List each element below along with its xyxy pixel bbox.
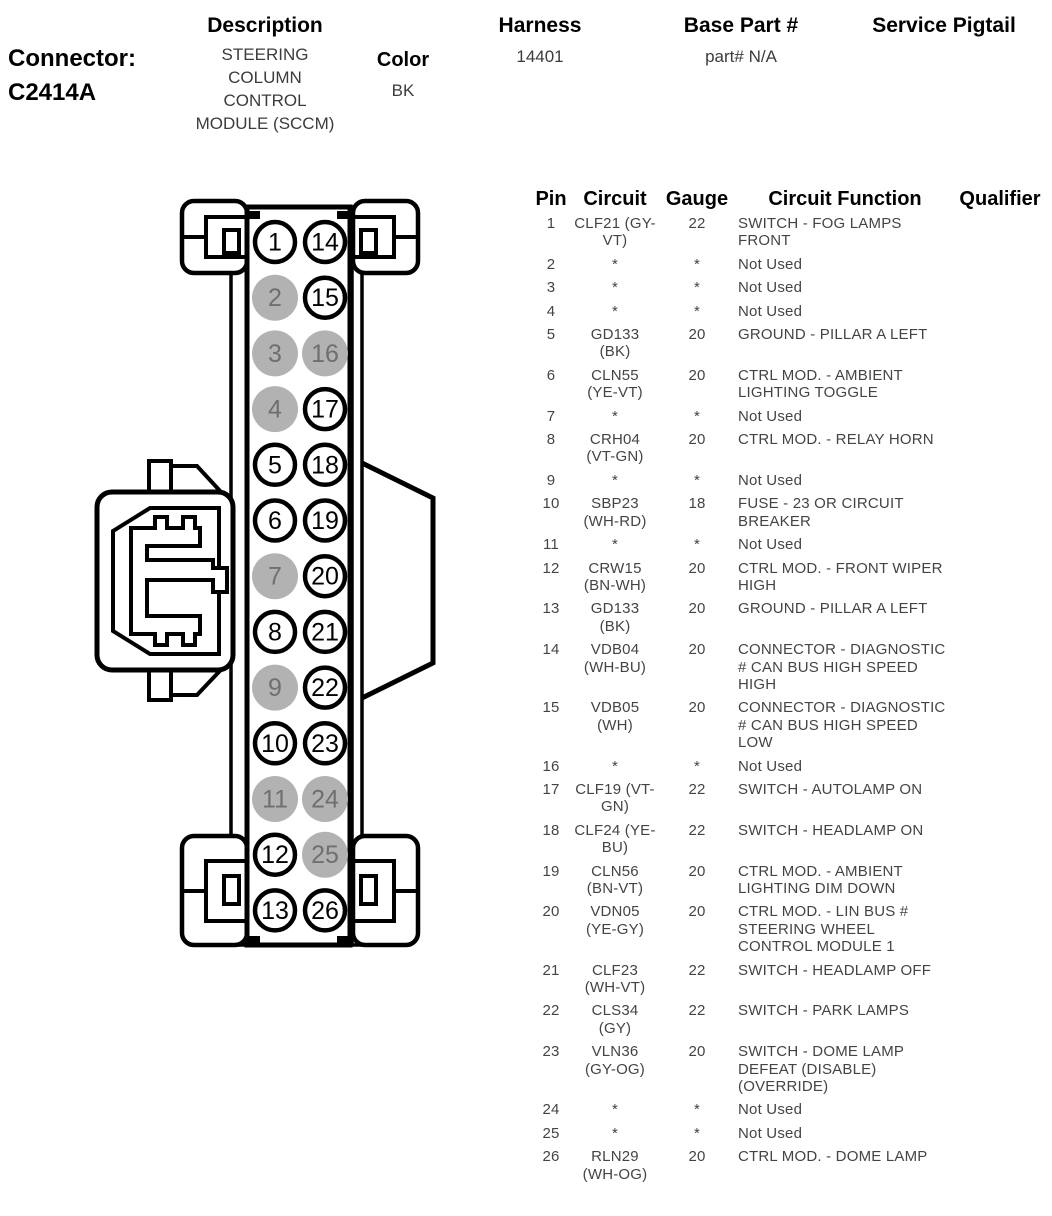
connector-ear-top-left	[182, 201, 247, 273]
svg-text:25: 25	[311, 841, 339, 869]
table-row: 14VDB04 (WH-BU)20CONNECTOR - DIAGNOSTIC …	[528, 638, 1048, 696]
pin-cell: 13	[528, 600, 574, 617]
connector-pin-12: 12	[255, 835, 295, 875]
gauge-cell: 20	[656, 699, 738, 716]
svg-text:6: 6	[268, 507, 282, 535]
connector-pin-8: 8	[255, 612, 295, 652]
gauge-cell: 20	[656, 560, 738, 577]
connector-pin-24: 24	[302, 776, 348, 822]
qualifier-cell	[952, 600, 1048, 601]
connector-pin-15: 15	[305, 278, 345, 318]
table-row: 25**Not Used	[528, 1122, 1048, 1145]
pin-cell: 3	[528, 279, 574, 296]
function-cell: CTRL MOD. - RELAY HORN	[738, 431, 952, 448]
column-header-gauge: Gauge	[656, 188, 738, 210]
gauge-cell: *	[656, 1125, 738, 1142]
table-row: 12CRW15 (BN-WH)20CTRL MOD. - FRONT WIPER…	[528, 557, 1048, 598]
pin-cell: 21	[528, 962, 574, 979]
gauge-cell: 22	[656, 962, 738, 979]
pin-cell: 1	[528, 215, 574, 232]
table-row: 23VLN36 (GY-OG)20SWITCH - DOME LAMP DEFE…	[528, 1040, 1048, 1098]
svg-text:7: 7	[268, 563, 282, 591]
circuit-cell: CLF24 (YE-BU)	[574, 822, 656, 857]
svg-text:21: 21	[311, 618, 339, 646]
table-row: 2**Not Used	[528, 253, 1048, 276]
svg-text:19: 19	[311, 507, 339, 535]
connector-pin-20: 20	[305, 556, 345, 596]
connector-ear-top-right	[353, 201, 418, 273]
circuit-cell: VLN36 (GY-OG)	[574, 1043, 656, 1078]
gauge-cell: 20	[656, 863, 738, 880]
pin-cell: 22	[528, 1002, 574, 1019]
connector-ear-bottom-right	[353, 836, 418, 945]
svg-text:17: 17	[311, 396, 339, 424]
table-row: 9**Not Used	[528, 469, 1048, 492]
circuit-cell: *	[574, 1101, 656, 1118]
qualifier-cell	[952, 431, 1048, 432]
function-cell: FUSE - 23 OR CIRCUIT BREAKER	[738, 495, 952, 530]
circuit-cell: VDN05 (YE-GY)	[574, 903, 656, 938]
table-row: 19CLN56 (BN-VT)20CTRL MOD. - AMBIENT LIG…	[528, 860, 1048, 901]
function-cell: SWITCH - AUTOLAMP ON	[738, 781, 952, 798]
svg-text:20: 20	[311, 563, 339, 591]
svg-text:4: 4	[268, 396, 282, 424]
description-label: Description	[185, 14, 345, 38]
pin-cell: 5	[528, 326, 574, 343]
pin-cell: 14	[528, 641, 574, 658]
qualifier-cell	[952, 1002, 1048, 1003]
connector-pin-17: 17	[305, 389, 345, 429]
qualifier-cell	[952, 536, 1048, 537]
connector-side-latch	[97, 461, 233, 700]
qualifier-cell	[952, 699, 1048, 700]
connector-pin-2: 2	[252, 275, 298, 321]
svg-text:8: 8	[268, 618, 282, 646]
gauge-cell: *	[656, 408, 738, 425]
qualifier-cell	[952, 279, 1048, 280]
connector-pin-4: 4	[252, 386, 298, 432]
base-part-block: Base Part # part# N/A	[666, 14, 816, 67]
gauge-cell: 20	[656, 326, 738, 343]
circuit-cell: *	[574, 303, 656, 320]
table-row: 17CLF19 (VT-GN)22SWITCH - AUTOLAMP ON	[528, 778, 1048, 819]
pin-cell: 26	[528, 1148, 574, 1165]
function-cell: Not Used	[738, 279, 952, 296]
harness-block: Harness 14401	[470, 14, 610, 67]
connector-pin-21: 21	[305, 612, 345, 652]
pin-cell: 2	[528, 256, 574, 273]
connector-label: Connector:	[8, 42, 136, 76]
circuit-cell: GD133 (BK)	[574, 600, 656, 635]
circuit-cell: *	[574, 408, 656, 425]
qualifier-cell	[952, 641, 1048, 642]
circuit-cell: SBP23 (WH-RD)	[574, 495, 656, 530]
qualifier-cell	[952, 1043, 1048, 1044]
connector-pin-23: 23	[305, 723, 345, 763]
table-row: 11**Not Used	[528, 533, 1048, 556]
function-cell: CTRL MOD. - AMBIENT LIGHTING DIM DOWN	[738, 863, 952, 898]
pin-cell: 17	[528, 781, 574, 798]
function-cell: CTRL MOD. - AMBIENT LIGHTING TOGGLE	[738, 367, 952, 402]
connector-title: Connector: C2414A	[8, 42, 136, 110]
connector-diagram: 1142153164175186197208219221023112412251…	[85, 190, 525, 980]
qualifier-cell	[952, 326, 1048, 327]
gauge-cell: *	[656, 472, 738, 489]
gauge-cell: 22	[656, 781, 738, 798]
svg-text:14: 14	[311, 229, 339, 257]
function-cell: Not Used	[738, 303, 952, 320]
function-cell: CONNECTOR - DIAGNOSTIC # CAN BUS HIGH SP…	[738, 699, 952, 751]
qualifier-cell	[952, 1148, 1048, 1149]
connector-ear-bottom-left	[182, 836, 247, 945]
service-pigtail-block: Service Pigtail	[864, 14, 1024, 38]
circuit-cell: CLF21 (GY-VT)	[574, 215, 656, 250]
gauge-cell: 22	[656, 1002, 738, 1019]
function-cell: Not Used	[738, 1101, 952, 1118]
qualifier-cell	[952, 1125, 1048, 1126]
function-cell: Not Used	[738, 536, 952, 553]
circuit-cell: CRW15 (BN-WH)	[574, 560, 656, 595]
connector-wedge	[362, 463, 433, 698]
gauge-cell: 20	[656, 641, 738, 658]
table-row: 15VDB05 (WH)20CONNECTOR - DIAGNOSTIC # C…	[528, 696, 1048, 754]
service-pigtail-label: Service Pigtail	[864, 14, 1024, 38]
svg-text:12: 12	[261, 841, 289, 869]
pin-cell: 19	[528, 863, 574, 880]
table-row: 4**Not Used	[528, 300, 1048, 323]
pin-cell: 6	[528, 367, 574, 384]
pin-cell: 8	[528, 431, 574, 448]
connector-pin-10: 10	[255, 723, 295, 763]
gauge-cell: 20	[656, 600, 738, 617]
function-cell: GROUND - PILLAR A LEFT	[738, 326, 952, 343]
function-cell: SWITCH - HEADLAMP ON	[738, 822, 952, 839]
connector-pin-14: 14	[305, 222, 345, 262]
function-cell: Not Used	[738, 472, 952, 489]
svg-text:26: 26	[311, 897, 339, 925]
qualifier-cell	[952, 408, 1048, 409]
pin-cell: 11	[528, 536, 574, 553]
connector-pin-3: 3	[252, 330, 298, 376]
svg-text:13: 13	[261, 897, 289, 925]
connector-pin-26: 26	[305, 890, 345, 930]
table-row: 26RLN29 (WH-OG)20CTRL MOD. - DOME LAMP	[528, 1145, 1048, 1186]
function-cell: CTRL MOD. - LIN BUS # STEERING WHEEL CON…	[738, 903, 952, 955]
harness-label: Harness	[470, 14, 610, 38]
gauge-cell: *	[656, 279, 738, 296]
function-cell: Not Used	[738, 758, 952, 775]
connector-pin-6: 6	[255, 501, 295, 541]
table-row: 3**Not Used	[528, 276, 1048, 299]
connector-pin-5: 5	[255, 445, 295, 485]
svg-text:24: 24	[311, 786, 339, 814]
qualifier-cell	[952, 256, 1048, 257]
table-row: 10SBP23 (WH-RD)18FUSE - 23 OR CIRCUIT BR…	[528, 492, 1048, 533]
circuit-cell: *	[574, 1125, 656, 1142]
function-cell: SWITCH - PARK LAMPS	[738, 1002, 952, 1019]
gauge-cell: 20	[656, 903, 738, 920]
circuit-cell: CLN56 (BN-VT)	[574, 863, 656, 898]
qualifier-cell	[952, 367, 1048, 368]
gauge-cell: *	[656, 303, 738, 320]
gauge-cell: 22	[656, 822, 738, 839]
table-row: 5GD133 (BK)20GROUND - PILLAR A LEFT	[528, 323, 1048, 364]
circuit-cell: GD133 (BK)	[574, 326, 656, 361]
circuit-cell: *	[574, 256, 656, 273]
pin-cell: 16	[528, 758, 574, 775]
qualifier-cell	[952, 822, 1048, 823]
color-value: BK	[368, 81, 438, 101]
circuit-cell: *	[574, 536, 656, 553]
qualifier-cell	[952, 758, 1048, 759]
connector-pin-7: 7	[252, 553, 298, 599]
gauge-cell: 20	[656, 1043, 738, 1060]
harness-value: 14401	[470, 47, 610, 67]
connector-pin-16: 16	[302, 330, 348, 376]
svg-text:15: 15	[311, 284, 339, 312]
connector-pin-25: 25	[302, 832, 348, 878]
pin-cell: 25	[528, 1125, 574, 1142]
svg-text:2: 2	[268, 284, 282, 312]
pin-table-body: 1CLF21 (GY-VT)22SWITCH - FOG LAMPS FRONT…	[528, 212, 1048, 1186]
qualifier-cell	[952, 903, 1048, 904]
table-row: 20VDN05 (YE-GY)20CTRL MOD. - LIN BUS # S…	[528, 900, 1048, 958]
connector-pin-22: 22	[305, 668, 345, 708]
qualifier-cell	[952, 215, 1048, 216]
base-part-value: part# N/A	[666, 47, 816, 67]
table-row: 21CLF23 (WH-VT)22SWITCH - HEADLAMP OFF	[528, 959, 1048, 1000]
function-cell: Not Used	[738, 408, 952, 425]
circuit-cell: CRH04 (VT-GN)	[574, 431, 656, 466]
base-part-label: Base Part #	[666, 14, 816, 38]
circuit-cell: CLN55 (YE-VT)	[574, 367, 656, 402]
table-row: 1CLF21 (GY-VT)22SWITCH - FOG LAMPS FRONT	[528, 212, 1048, 253]
gauge-cell: *	[656, 758, 738, 775]
connector-id: C2414A	[8, 76, 136, 110]
pin-cell: 23	[528, 1043, 574, 1060]
pin-table-header: Pin Circuit Gauge Circuit Function Quali…	[528, 188, 1048, 210]
circuit-cell: CLS34 (GY)	[574, 1002, 656, 1037]
qualifier-cell	[952, 472, 1048, 473]
table-row: 24**Not Used	[528, 1098, 1048, 1121]
page: Connector: C2414A Description STEERING C…	[0, 0, 1052, 1216]
function-cell: SWITCH - DOME LAMP DEFEAT (DISABLE) (OVE…	[738, 1043, 952, 1095]
svg-text:16: 16	[311, 340, 339, 368]
column-header-qualifier: Qualifier	[952, 188, 1048, 210]
qualifier-cell	[952, 560, 1048, 561]
table-row: 13GD133 (BK)20GROUND - PILLAR A LEFT	[528, 597, 1048, 638]
function-cell: CTRL MOD. - FRONT WIPER HIGH	[738, 560, 952, 595]
function-cell: SWITCH - FOG LAMPS FRONT	[738, 215, 952, 250]
table-row: 18CLF24 (YE-BU)22SWITCH - HEADLAMP ON	[528, 819, 1048, 860]
column-header-function: Circuit Function	[738, 188, 952, 210]
color-label: Color	[368, 49, 438, 72]
description-block: Description STEERING COLUMN CONTROL MODU…	[185, 14, 345, 135]
gauge-cell: *	[656, 1101, 738, 1118]
pin-cell: 15	[528, 699, 574, 716]
function-cell: CTRL MOD. - DOME LAMP	[738, 1148, 952, 1165]
qualifier-cell	[952, 495, 1048, 496]
connector-pin-18: 18	[305, 445, 345, 485]
pin-cell: 7	[528, 408, 574, 425]
pin-cell: 18	[528, 822, 574, 839]
connector-pin-13: 13	[255, 890, 295, 930]
circuit-cell: CLF23 (WH-VT)	[574, 962, 656, 997]
circuit-cell: *	[574, 758, 656, 775]
qualifier-cell	[952, 1101, 1048, 1102]
svg-text:22: 22	[311, 674, 339, 702]
pin-table: Pin Circuit Gauge Circuit Function Quali…	[528, 188, 1048, 1186]
table-row: 7**Not Used	[528, 405, 1048, 428]
gauge-cell: 20	[656, 367, 738, 384]
column-header-pin: Pin	[528, 188, 574, 210]
svg-text:1: 1	[268, 229, 282, 257]
gauge-cell: *	[656, 536, 738, 553]
svg-text:9: 9	[268, 674, 282, 702]
connector-pin-11: 11	[252, 776, 298, 822]
circuit-cell: VDB04 (WH-BU)	[574, 641, 656, 676]
description-value: STEERING COLUMN CONTROL MODULE (SCCM)	[190, 43, 340, 135]
circuit-cell: CLF19 (VT-GN)	[574, 781, 656, 816]
function-cell: Not Used	[738, 256, 952, 273]
table-row: 8CRH04 (VT-GN)20CTRL MOD. - RELAY HORN	[528, 428, 1048, 469]
circuit-cell: *	[574, 279, 656, 296]
pin-cell: 12	[528, 560, 574, 577]
table-row: 16**Not Used	[528, 755, 1048, 778]
svg-text:5: 5	[268, 451, 282, 479]
connector-pin-1: 1	[255, 222, 295, 262]
svg-text:18: 18	[311, 451, 339, 479]
svg-text:10: 10	[261, 730, 289, 758]
qualifier-cell	[952, 303, 1048, 304]
gauge-cell: 18	[656, 495, 738, 512]
table-row: 22CLS34 (GY)22SWITCH - PARK LAMPS	[528, 999, 1048, 1040]
connector-pin-19: 19	[305, 501, 345, 541]
svg-text:23: 23	[311, 730, 339, 758]
circuit-cell: RLN29 (WH-OG)	[574, 1148, 656, 1183]
function-cell: CONNECTOR - DIAGNOSTIC # CAN BUS HIGH SP…	[738, 641, 952, 693]
circuit-cell: *	[574, 472, 656, 489]
connector-pin-9: 9	[252, 665, 298, 711]
qualifier-cell	[952, 863, 1048, 864]
pin-cell: 20	[528, 903, 574, 920]
qualifier-cell	[952, 781, 1048, 782]
function-cell: GROUND - PILLAR A LEFT	[738, 600, 952, 617]
pin-cell: 9	[528, 472, 574, 489]
gauge-cell: 22	[656, 215, 738, 232]
gauge-cell: 20	[656, 431, 738, 448]
function-cell: SWITCH - HEADLAMP OFF	[738, 962, 952, 979]
function-cell: Not Used	[738, 1125, 952, 1142]
svg-text:3: 3	[268, 340, 282, 368]
svg-text:11: 11	[262, 786, 288, 814]
circuit-cell: VDB05 (WH)	[574, 699, 656, 734]
pin-cell: 4	[528, 303, 574, 320]
column-header-circuit: Circuit	[574, 188, 656, 210]
gauge-cell: 20	[656, 1148, 738, 1165]
gauge-cell: *	[656, 256, 738, 273]
qualifier-cell	[952, 962, 1048, 963]
pin-cell: 24	[528, 1101, 574, 1118]
table-row: 6CLN55 (YE-VT)20CTRL MOD. - AMBIENT LIGH…	[528, 364, 1048, 405]
color-block: Color BK	[368, 49, 438, 101]
pin-cell: 10	[528, 495, 574, 512]
